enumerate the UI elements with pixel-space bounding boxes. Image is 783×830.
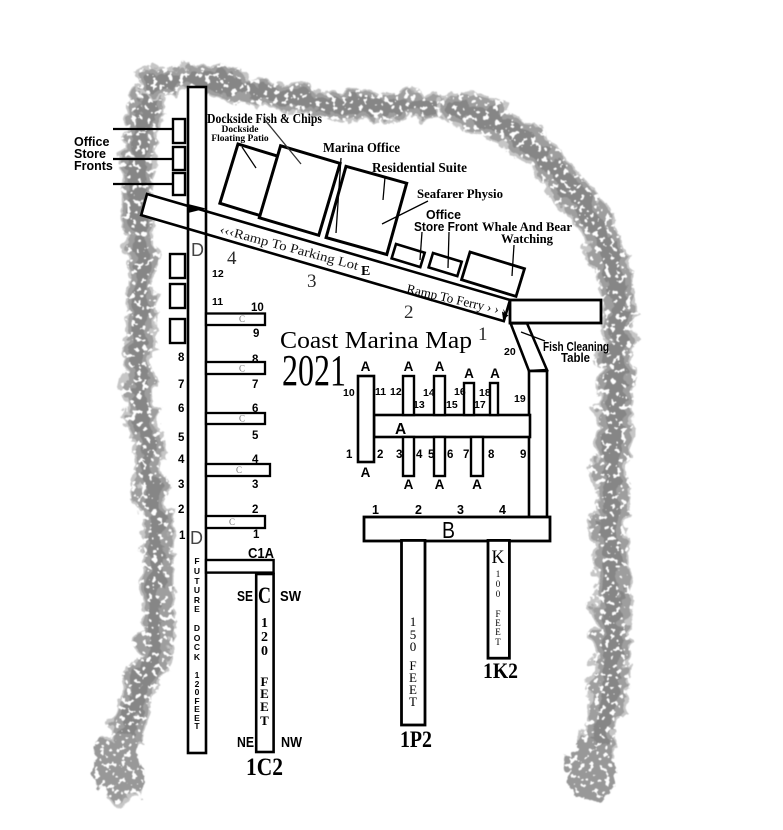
- svg-text:0: 0: [410, 639, 417, 654]
- svg-text:9: 9: [253, 328, 259, 340]
- svg-text:2021: 2021: [282, 346, 346, 395]
- svg-text:SE: SE: [237, 588, 253, 605]
- svg-text:C: C: [194, 642, 200, 652]
- svg-text:A: A: [361, 465, 371, 480]
- svg-text:C: C: [239, 364, 245, 374]
- svg-text:D: D: [194, 623, 200, 633]
- svg-text:7: 7: [463, 449, 469, 461]
- svg-text:4: 4: [252, 454, 259, 466]
- svg-text:C: C: [258, 583, 271, 608]
- svg-text:0: 0: [496, 589, 501, 599]
- svg-text:E: E: [194, 604, 200, 614]
- svg-text:6: 6: [252, 403, 258, 415]
- svg-text:1: 1: [179, 530, 186, 542]
- svg-text:7: 7: [252, 379, 258, 391]
- svg-text:3: 3: [252, 479, 258, 491]
- svg-text:1: 1: [478, 324, 488, 345]
- svg-text:1K2: 1K2: [483, 658, 518, 683]
- svg-text:Store Front: Store Front: [414, 219, 479, 234]
- svg-text:2: 2: [415, 503, 422, 517]
- svg-text:C: C: [239, 314, 245, 324]
- svg-text:19: 19: [514, 393, 526, 405]
- svg-text:15: 15: [446, 399, 458, 411]
- svg-text:2: 2: [261, 630, 268, 645]
- svg-text:8: 8: [488, 449, 495, 461]
- svg-text:3: 3: [396, 449, 402, 461]
- svg-text:2: 2: [404, 302, 414, 323]
- svg-text:16: 16: [454, 386, 466, 398]
- svg-text:A: A: [490, 366, 500, 381]
- svg-text:6: 6: [447, 449, 453, 461]
- svg-text:12: 12: [390, 386, 402, 398]
- svg-text:1: 1: [253, 529, 260, 541]
- svg-text:C: C: [236, 465, 242, 475]
- svg-text:Fronts: Fronts: [74, 159, 113, 173]
- svg-text:Seafarer Physio: Seafarer Physio: [417, 186, 503, 201]
- svg-text:A: A: [404, 477, 414, 492]
- svg-text:C: C: [239, 414, 245, 424]
- svg-text:11: 11: [212, 296, 223, 308]
- svg-text:F: F: [194, 556, 199, 566]
- svg-text:5: 5: [428, 449, 435, 461]
- svg-text:Table: Table: [561, 351, 590, 365]
- svg-text:20: 20: [504, 346, 516, 358]
- svg-text:11: 11: [375, 386, 386, 398]
- svg-text:T: T: [409, 694, 417, 709]
- svg-text:T: T: [194, 721, 200, 731]
- svg-text:A: A: [395, 421, 406, 438]
- svg-text:1: 1: [346, 449, 353, 461]
- svg-text:12: 12: [212, 268, 224, 280]
- svg-text:3: 3: [178, 479, 184, 491]
- svg-text:K: K: [492, 547, 505, 568]
- svg-text:1C2: 1C2: [246, 754, 283, 781]
- svg-text:U: U: [194, 585, 200, 595]
- svg-text:A: A: [464, 366, 474, 381]
- svg-text:A: A: [472, 477, 482, 492]
- svg-text:17: 17: [474, 399, 486, 411]
- svg-text:E: E: [260, 699, 269, 714]
- svg-text:Residential Suite: Residential Suite: [372, 161, 467, 176]
- svg-text:2: 2: [377, 449, 383, 461]
- svg-text:14: 14: [423, 387, 435, 399]
- svg-text:E: E: [361, 264, 370, 279]
- svg-text:1P2: 1P2: [400, 727, 432, 752]
- svg-text:A: A: [361, 359, 371, 374]
- svg-text:T: T: [495, 637, 501, 647]
- svg-text:18: 18: [479, 387, 491, 399]
- svg-text:1: 1: [261, 616, 268, 631]
- svg-text:A: A: [404, 359, 414, 374]
- svg-text:10: 10: [343, 387, 355, 399]
- svg-text:2: 2: [178, 504, 184, 516]
- svg-text:0: 0: [261, 644, 268, 659]
- svg-text:10: 10: [251, 302, 264, 314]
- svg-text:NE: NE: [237, 734, 254, 751]
- svg-text:5: 5: [252, 430, 259, 442]
- svg-text:D: D: [190, 528, 203, 548]
- svg-text:Floating Patio: Floating Patio: [211, 134, 269, 144]
- svg-text:K: K: [194, 652, 201, 662]
- svg-text:0: 0: [496, 579, 501, 589]
- svg-text:4: 4: [499, 503, 506, 517]
- svg-text:9: 9: [520, 449, 526, 461]
- svg-text:1: 1: [496, 569, 501, 579]
- svg-text:D: D: [191, 240, 204, 260]
- svg-text:A: A: [435, 359, 445, 374]
- svg-text:8: 8: [252, 354, 259, 366]
- svg-text:A: A: [435, 477, 445, 492]
- svg-text:E: E: [495, 627, 501, 637]
- svg-text:NW: NW: [281, 734, 303, 751]
- svg-text:C1A: C1A: [248, 546, 274, 562]
- svg-text:Marina Office: Marina Office: [323, 141, 400, 156]
- svg-text:Watching: Watching: [501, 231, 553, 246]
- svg-text:8: 8: [178, 352, 185, 364]
- svg-text:7: 7: [178, 379, 184, 391]
- svg-text:U: U: [194, 566, 200, 576]
- svg-text:13: 13: [413, 399, 425, 411]
- svg-text:3: 3: [457, 503, 464, 517]
- svg-text:4: 4: [178, 454, 185, 466]
- svg-text:2: 2: [252, 504, 258, 516]
- svg-text:T: T: [260, 713, 269, 728]
- svg-text:SW: SW: [280, 588, 302, 605]
- svg-text:4: 4: [227, 248, 237, 269]
- svg-text:1: 1: [372, 503, 379, 517]
- svg-text:C: C: [229, 517, 235, 527]
- svg-text:3: 3: [307, 271, 317, 292]
- svg-text:4: 4: [416, 449, 423, 461]
- svg-text:6: 6: [178, 403, 184, 415]
- svg-text:5: 5: [178, 432, 185, 444]
- svg-text:B: B: [442, 517, 455, 543]
